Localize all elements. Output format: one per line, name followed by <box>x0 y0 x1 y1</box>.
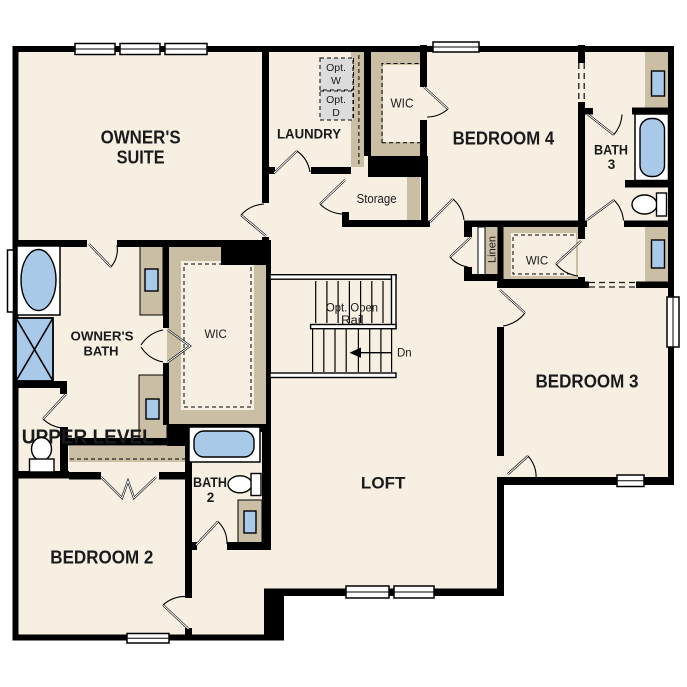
svg-text:3: 3 <box>608 157 616 172</box>
svg-text:2: 2 <box>207 490 215 505</box>
svg-text:BATH: BATH <box>84 344 119 359</box>
svg-text:WIC: WIC <box>391 96 414 111</box>
svg-text:WIC: WIC <box>526 254 549 268</box>
svg-text:Dn: Dn <box>397 348 412 360</box>
svg-text:LAUNDRY: LAUNDRY <box>277 127 341 142</box>
svg-text:BEDROOM 2: BEDROOM 2 <box>50 548 153 568</box>
svg-text:Opt.: Opt. <box>326 94 346 106</box>
svg-text:BATH: BATH <box>594 143 628 158</box>
svg-text:Opt. Open: Opt. Open <box>326 303 378 315</box>
svg-text:Rail: Rail <box>341 315 364 327</box>
svg-text:OWNER'S: OWNER'S <box>101 128 181 148</box>
svg-text:Linen: Linen <box>487 236 499 263</box>
svg-text:WIC: WIC <box>204 327 227 341</box>
svg-text:Opt.: Opt. <box>326 62 346 74</box>
svg-text:LOFT: LOFT <box>361 474 406 493</box>
svg-text:SUITE: SUITE <box>117 148 165 168</box>
svg-text:OWNER'S: OWNER'S <box>71 329 134 344</box>
svg-text:BATH: BATH <box>193 475 227 490</box>
svg-text:Storage: Storage <box>357 192 397 206</box>
svg-text:BEDROOM 4: BEDROOM 4 <box>453 129 555 149</box>
svg-text:BEDROOM 3: BEDROOM 3 <box>536 372 639 392</box>
svg-text:D: D <box>332 107 340 119</box>
svg-text:W: W <box>331 75 341 87</box>
